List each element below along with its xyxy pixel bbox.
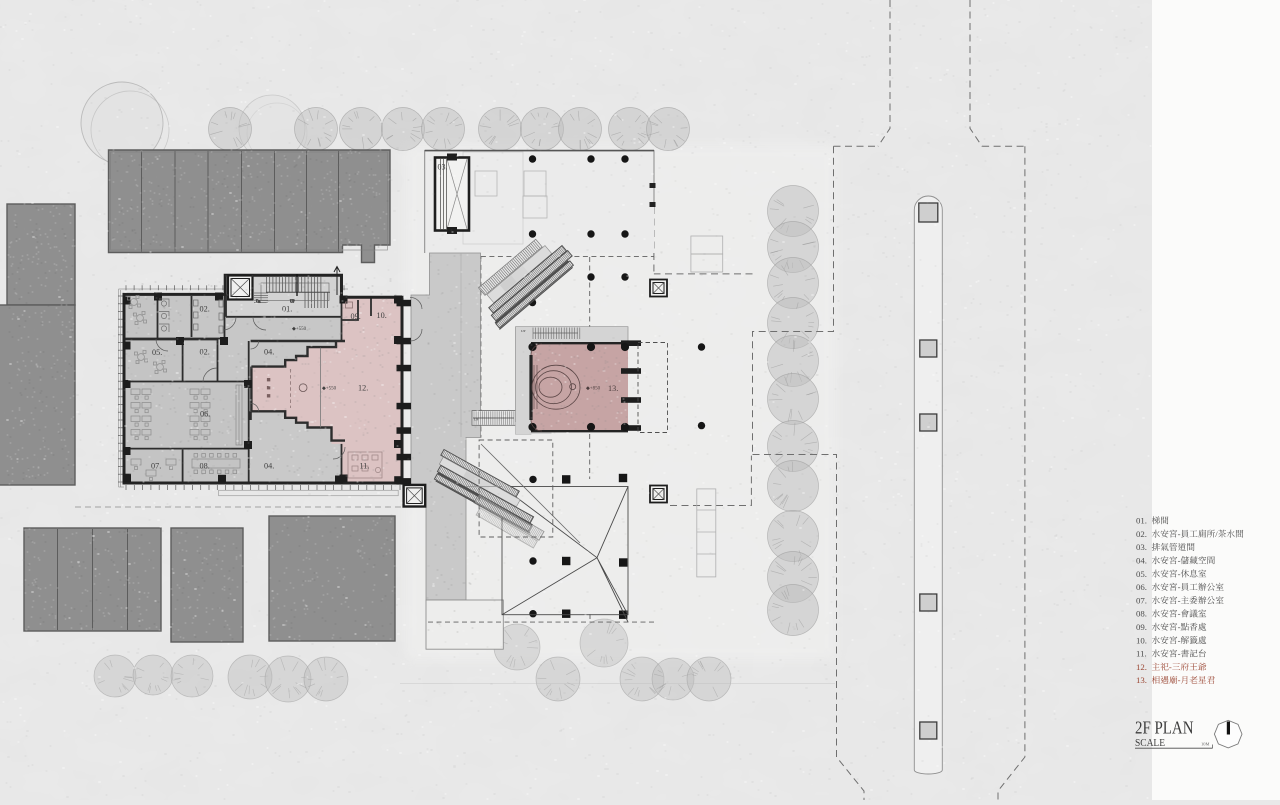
svg-text:05.: 05. [152,348,162,357]
svg-text:13.: 13. [1136,675,1147,685]
svg-text:-: - [1169,662,1172,672]
svg-text:13.: 13. [608,384,618,393]
svg-text:UP: UP [474,418,479,422]
svg-text:04.: 04. [264,462,274,471]
svg-text:07.: 07. [1136,595,1147,605]
svg-text:09.: 09. [1136,622,1147,632]
svg-text:04.: 04. [264,348,274,357]
svg-text:07.: 07. [151,462,161,471]
svg-text:01.: 01. [1136,516,1147,526]
svg-text:03.: 03. [438,163,448,172]
svg-text:08.: 08. [200,462,210,471]
svg-text:10M: 10M [1201,742,1210,747]
svg-text:-: - [1178,609,1181,619]
svg-text:-: - [1178,569,1181,579]
svg-text:UP: UP [290,300,295,304]
svg-text:-: - [1178,649,1181,659]
svg-text:03.: 03. [1136,542,1147,552]
svg-text:10.: 10. [1136,635,1147,645]
svg-text:08.: 08. [1136,609,1147,619]
svg-text:◆+550: ◆+550 [322,386,337,392]
svg-text:11.: 11. [360,462,370,471]
svg-text:-: - [1178,556,1181,566]
svg-text:02.: 02. [1136,529,1147,539]
svg-text:06.: 06. [200,410,210,419]
svg-text:06.: 06. [1136,582,1147,592]
svg-text:SCALE: SCALE [1135,738,1165,749]
svg-text:-: - [1178,622,1181,632]
svg-text:02.: 02. [200,348,210,357]
svg-text:05.: 05. [1136,569,1147,579]
svg-text:12.: 12. [1136,662,1147,672]
svg-text:2F PLAN: 2F PLAN [1135,718,1194,738]
svg-text:11.: 11. [1136,649,1147,659]
svg-text:-: - [1178,595,1181,605]
svg-text:-: - [1178,635,1181,645]
svg-text:-: - [1178,529,1181,539]
svg-text:10.: 10. [377,311,387,320]
svg-text:04.: 04. [1136,556,1147,566]
svg-text:UP: UP [521,329,526,333]
svg-text:◆+550: ◆+550 [292,326,307,332]
svg-text:-: - [1178,675,1181,685]
svg-text:-: - [1178,582,1181,592]
svg-text:12.: 12. [358,384,368,393]
svg-text:02.: 02. [200,305,210,314]
